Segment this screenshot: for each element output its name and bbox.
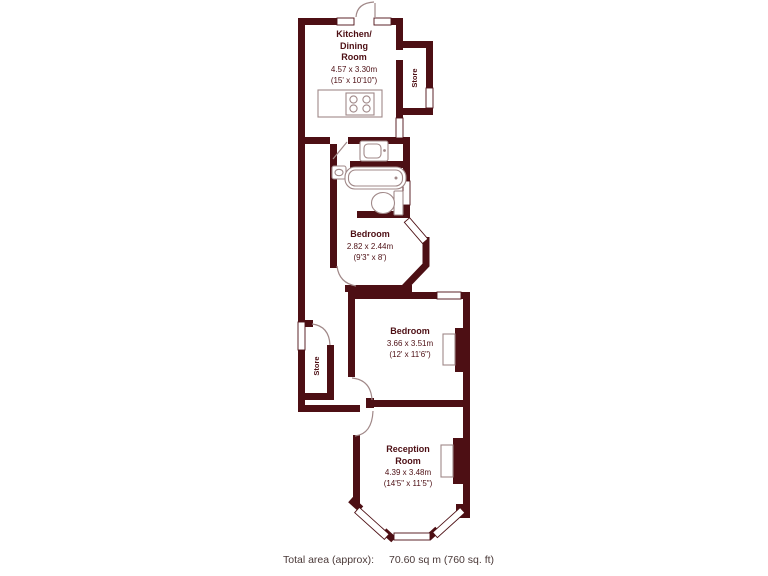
wall-divider-post xyxy=(366,398,374,408)
floorplan: Kitchen/ Dining Room 4.57 x 3.30m (15' x… xyxy=(0,0,768,576)
reception-dims-imperial: (14'5" x 11'5") xyxy=(358,478,458,489)
bedroom-large-dims-imperial: (12' x 11'6") xyxy=(360,349,460,360)
bedroom-small-dims-metric: 2.82 x 2.44m xyxy=(320,241,420,252)
reception-label: Reception Room 4.39 x 3.48m (14'5" x 11'… xyxy=(358,444,458,489)
store-top-label: Store xyxy=(399,63,429,93)
kitchen-name-line: Kitchen/ xyxy=(304,29,404,41)
window-bed2-top xyxy=(437,292,461,299)
bedroom-large-label: Bedroom 3.66 x 3.51m (12' x 11'6") xyxy=(360,326,460,360)
kitchen-name-line: Dining xyxy=(304,41,404,53)
bedroom-small-dims-imperial: (9'3" x 8') xyxy=(320,252,420,263)
door-arc-bed2 xyxy=(352,378,372,400)
kitchen-name-line: Room xyxy=(304,52,404,64)
total-area-label: Total area (approx): xyxy=(283,554,374,566)
window-kitchen-top-right xyxy=(374,18,391,25)
floorplan-canvas xyxy=(0,0,768,576)
washbasin-tap xyxy=(383,149,386,152)
bathtub-drain xyxy=(395,177,398,180)
total-area-value: 70.60 sq m (760 sq. ft) xyxy=(389,554,494,566)
window-hall-left xyxy=(298,322,305,350)
bedroom-small-label: Bedroom 2.82 x 2.44m (9'3" x 8') xyxy=(320,229,420,263)
bedroom-large-name: Bedroom xyxy=(360,326,460,338)
washbasin-bowl xyxy=(364,144,381,158)
kitchen-dims-metric: 4.57 x 3.30m xyxy=(304,64,404,75)
store-hall-label: Store xyxy=(301,351,331,381)
door-arc-reception xyxy=(355,411,373,436)
toilet-bowl xyxy=(372,193,395,214)
window-kitchen-top-left xyxy=(337,18,354,25)
window-bay-left xyxy=(355,507,389,539)
window-bay-bottom xyxy=(394,533,430,540)
bedroom-small-name: Bedroom xyxy=(320,229,420,241)
wall-storeL-post xyxy=(305,320,313,327)
hob-burner xyxy=(350,96,357,103)
wall-storeL-bottom xyxy=(305,393,334,400)
window-bay-right xyxy=(433,508,465,538)
door-arc-store-hall xyxy=(312,324,330,345)
hob-burner xyxy=(363,105,370,112)
wall-hall-bottom xyxy=(298,405,360,412)
reception-name-line: Reception xyxy=(358,444,458,456)
hob-burner xyxy=(363,96,370,103)
wall-kitchen-bottom-a xyxy=(298,137,330,144)
bedroom-large-dims-metric: 3.66 x 3.51m xyxy=(360,338,460,349)
corner-basin-bowl xyxy=(335,169,343,175)
reception-name-line: Room xyxy=(358,456,458,468)
fixtures xyxy=(318,90,455,477)
wall-kitchen-right-mid xyxy=(396,108,403,118)
wall-outer-left-a xyxy=(298,144,305,322)
hob xyxy=(346,93,374,115)
window-kitchen-right xyxy=(396,118,403,138)
kitchen-label: Kitchen/ Dining Room 4.57 x 3.30m (15' x… xyxy=(304,29,404,86)
wall-kitchen-top-a xyxy=(298,18,337,25)
wall-bed2-top-a xyxy=(348,292,437,299)
wall-right-main xyxy=(463,292,470,518)
wall-room-divider xyxy=(366,400,463,407)
bathtub-inner xyxy=(349,170,403,186)
kitchen-dims-imperial: (15' x 10'10") xyxy=(304,75,404,86)
door-arc-bed1 xyxy=(337,266,356,286)
door-arc-kitchen-entrance xyxy=(356,2,374,17)
toilet-cistern xyxy=(394,191,403,215)
wall-bed2-left xyxy=(348,292,355,377)
hob-burner xyxy=(350,105,357,112)
reception-dims-metric: 4.39 x 3.48m xyxy=(358,467,458,478)
